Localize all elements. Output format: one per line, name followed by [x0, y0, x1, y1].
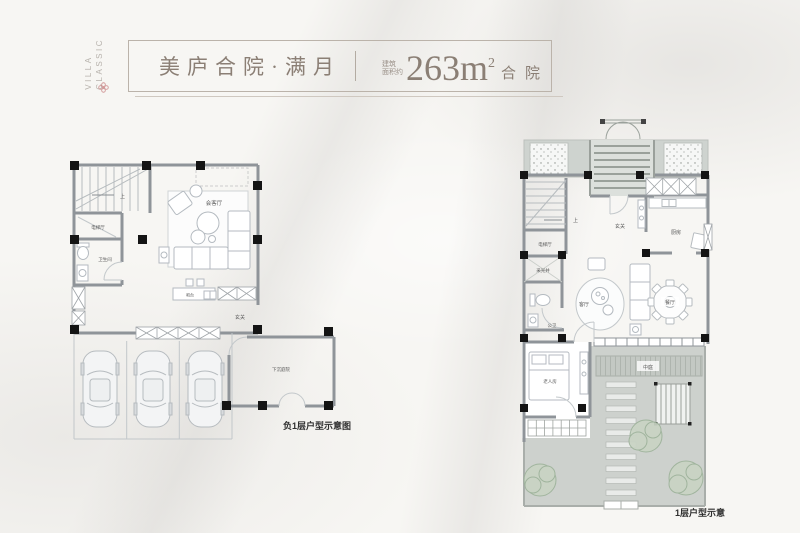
area-prefix-line1: 建筑: [382, 61, 403, 69]
f1-courtyard-gate: [604, 501, 638, 509]
tree: [629, 420, 662, 452]
b1-bathroom: [77, 243, 122, 281]
b1-elevator-label: 电梯厅: [91, 224, 105, 231]
page: VILLA CLASSIC 美庐合院·满月 建筑 面积约 263m2 合院: [0, 0, 800, 533]
f1-living-label: 客厅: [579, 301, 589, 308]
b1-sunken-courtyard-label: 下沉庭院: [272, 366, 290, 373]
b1-bar: [173, 279, 216, 300]
f1-bedroom-label: 老人房: [543, 378, 557, 385]
b1-staircase: [76, 167, 148, 211]
tree: [669, 461, 703, 495]
f1-staircase: [526, 180, 566, 226]
b1-cars: [81, 351, 224, 427]
f1-kitchen-label: 厨房: [671, 229, 681, 236]
f1-living-window: [594, 338, 704, 346]
basement-floor-plan: 上 电梯厅 卫生间: [62, 155, 362, 445]
f1-pergola: [654, 382, 692, 426]
f1-foyer-door: [610, 196, 628, 214]
b1-reception-furniture: [159, 168, 250, 269]
basement-caption: 负1层户型示意图: [262, 419, 372, 432]
product-type-label: 合院: [501, 62, 549, 83]
f1-stairs-up-label: 上: [573, 217, 578, 224]
first-floor-caption: 1层户型示意: [650, 506, 750, 519]
area-group: 建筑 面积约 263m2 合院: [382, 46, 549, 86]
f1-guest-bathroom: [528, 294, 562, 328]
b1-bar-label: 吧台: [186, 292, 194, 298]
f1-dining-label: 餐厅: [665, 299, 675, 306]
first-floor-plan: 上 电梯厅 采光井 公卫 玄关 厨房: [518, 112, 748, 524]
f1-entry-gate: [600, 119, 646, 139]
f1-bedroom-window: [528, 420, 586, 436]
page-title: 美庐合院·满月: [159, 51, 341, 81]
area-prefix-label: 建筑 面积约: [382, 61, 403, 77]
tree: [524, 464, 556, 496]
brand-line-villa: VILLA: [84, 38, 93, 90]
b1-stairs-up-label: 上: [120, 193, 125, 200]
b1-reception-label: 会客厅: [206, 199, 223, 207]
f1-kitchen-window-band: [646, 178, 696, 195]
header-box: 美庐合院·满月 建筑 面积约 263m2 合院: [128, 40, 552, 92]
f1-foyer-label: 玄关: [615, 223, 625, 230]
area-value: 263m2: [406, 46, 495, 86]
flower-icon: [98, 82, 109, 93]
b1-bar-window: [218, 287, 256, 300]
f1-courtyard-label: 中庭: [643, 364, 653, 371]
b1-bathroom-label: 卫生间: [98, 256, 112, 263]
header-divider: [355, 51, 356, 81]
f1-guest-bathroom-label: 公卫: [548, 323, 557, 328]
f1-light-well-label: 采光井: [536, 267, 550, 274]
b1-foyer-label: 玄关: [235, 314, 245, 321]
f1-right-window: [704, 224, 712, 250]
b1-left-windows: [72, 287, 85, 325]
f1-elevator-label: 电梯厅: [538, 241, 552, 248]
f1-kitchen-furniture: [649, 198, 707, 250]
b1-bottom-window: [136, 327, 220, 339]
area-prefix-line2: 面积约: [382, 69, 403, 77]
header-underline: [135, 96, 563, 97]
f1-foyer-cabinet: [638, 200, 645, 228]
area-exponent: 2: [488, 56, 495, 71]
